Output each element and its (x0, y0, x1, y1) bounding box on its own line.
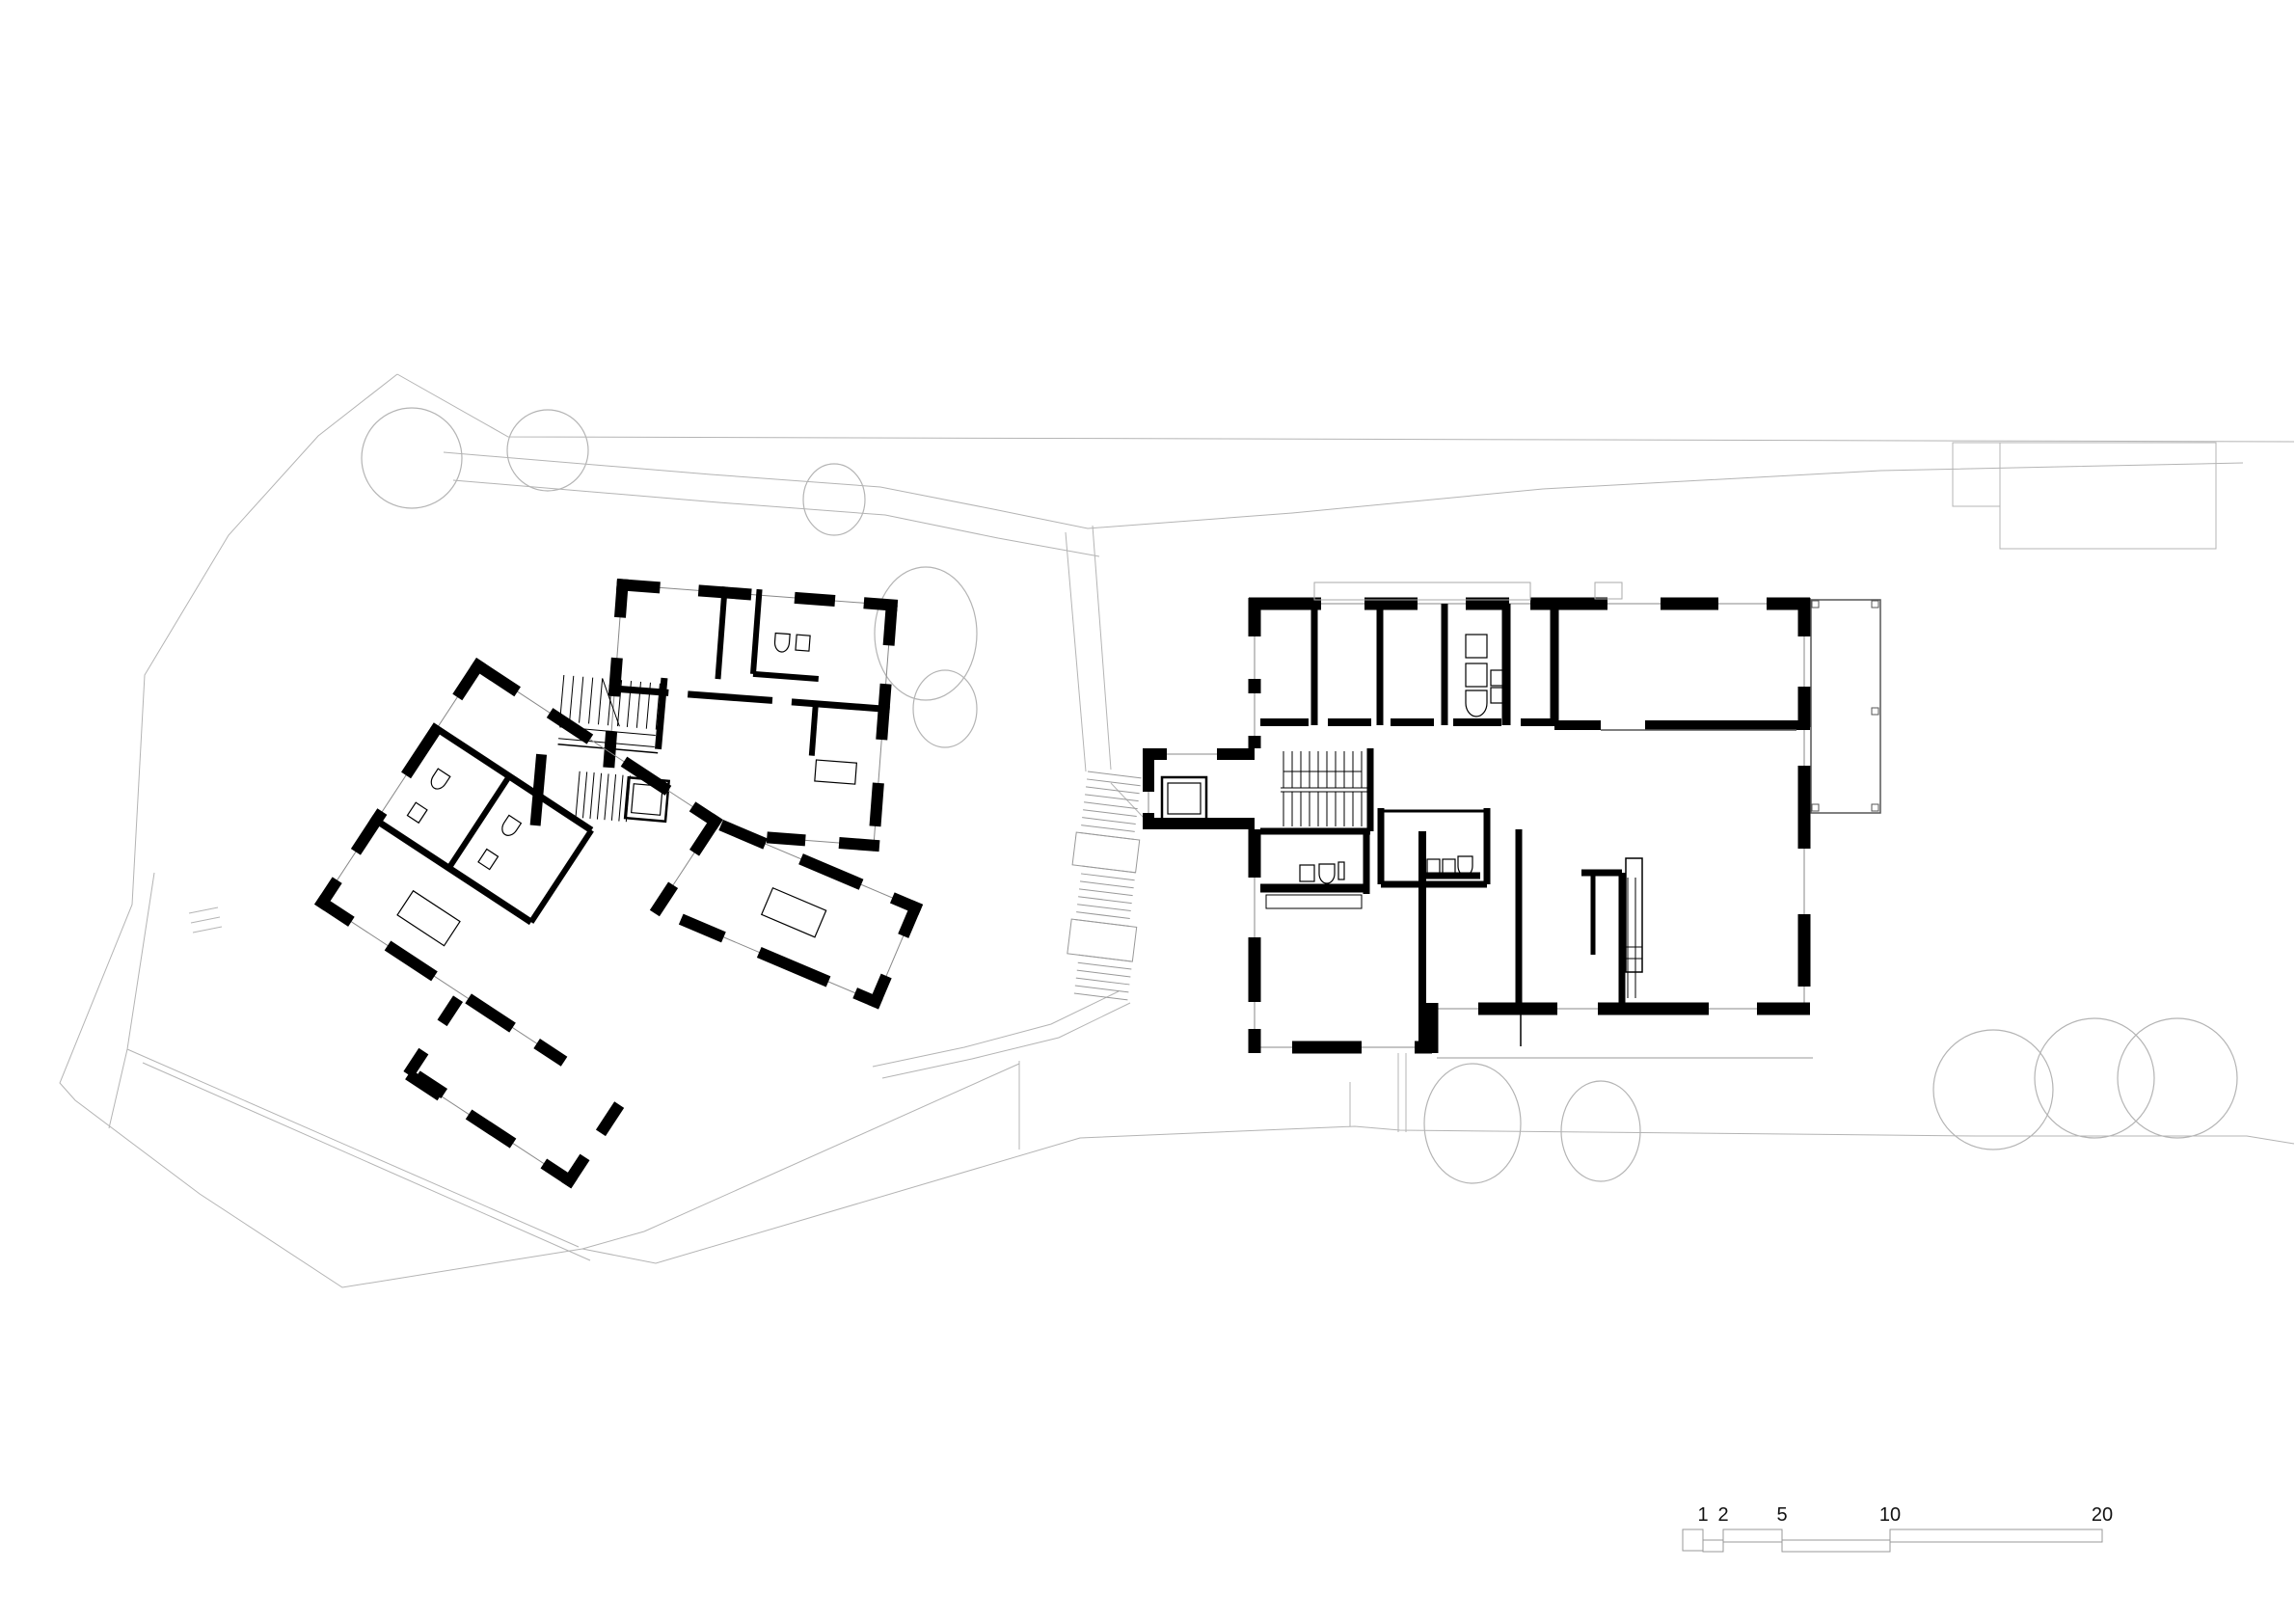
footpath-upper (444, 452, 2243, 528)
line (193, 927, 222, 933)
line (189, 907, 218, 913)
line (371, 817, 530, 922)
pline (873, 991, 1119, 1067)
scale-bar-segment (1683, 1529, 1703, 1551)
line (717, 586, 724, 679)
rect (1067, 919, 1137, 961)
trees (362, 408, 2237, 1183)
scale-bar (1683, 1529, 2102, 1552)
building-east-walls (1143, 598, 1810, 1053)
treads (1082, 866, 1136, 873)
treads (1085, 795, 1139, 801)
table (762, 888, 826, 937)
treads (1080, 881, 1134, 888)
treads (1082, 818, 1136, 825)
toilet (1319, 864, 1335, 883)
line (753, 589, 760, 674)
treads (1083, 810, 1137, 817)
treads (1076, 978, 1130, 985)
pline (109, 873, 154, 1128)
toilet (499, 815, 521, 838)
west-wall (608, 579, 623, 767)
treads (1086, 787, 1140, 794)
line (127, 1049, 579, 1247)
building-east-fixtures (1300, 635, 1503, 883)
stair-treads (619, 775, 623, 822)
east-wall (874, 605, 892, 851)
tree (1561, 1081, 1640, 1181)
line (432, 725, 591, 830)
line (317, 900, 564, 1062)
scale-bar-labels: 1251020 (1697, 1504, 2113, 1526)
stair-treads (597, 773, 601, 820)
treads (1077, 970, 1131, 977)
table (397, 891, 460, 946)
neighbor-building-small (1953, 443, 2000, 506)
tree (2118, 1018, 2237, 1138)
roof-outline (1595, 582, 1622, 599)
stair-treads (590, 772, 594, 819)
sink (1427, 859, 1440, 874)
building-west-volume-ne (598, 579, 898, 852)
treads (1078, 897, 1132, 904)
rect (1338, 862, 1344, 879)
wardrobe (1626, 858, 1642, 972)
treads (1087, 779, 1141, 786)
treads (1075, 986, 1129, 992)
treads (1088, 771, 1142, 778)
kitchen-island (815, 760, 857, 784)
scale-label: 10 (1879, 1504, 1901, 1526)
rect (1266, 895, 1362, 908)
rect (1491, 688, 1503, 703)
tree (913, 670, 977, 747)
treads (1079, 955, 1133, 961)
stair-treads (570, 676, 574, 722)
site-plan-drawing: 1251020 (0, 0, 2296, 1623)
rect (1872, 601, 1878, 608)
building-west-volume-se (679, 820, 923, 1010)
sink (796, 635, 810, 651)
scale-bar-segment (1890, 1529, 2102, 1542)
treads (1078, 962, 1132, 969)
sink (1300, 865, 1314, 881)
stair-treads (598, 678, 602, 724)
pline (397, 374, 2294, 442)
east-wall (566, 1105, 619, 1186)
toilet (774, 633, 790, 652)
sink (407, 802, 426, 823)
rect (1812, 601, 1819, 608)
treads (1076, 912, 1130, 919)
stair-treads (576, 771, 580, 818)
tree (2035, 1018, 2154, 1138)
scale-label: 5 (1776, 1504, 1787, 1526)
plan-canvas: 1251020 (0, 0, 2296, 1623)
sink (1443, 859, 1455, 874)
treads (1081, 874, 1135, 880)
line (449, 776, 510, 868)
neighbor-building-large (2000, 443, 2216, 549)
rect (1812, 804, 1819, 811)
building-west-volume-s (405, 999, 624, 1189)
rect (1491, 670, 1503, 686)
elevator-cab (1168, 783, 1201, 814)
tree (362, 408, 462, 508)
line (608, 689, 889, 710)
line (753, 674, 819, 679)
footpath-lower (453, 480, 1099, 556)
stair-treads (605, 773, 608, 820)
line (644, 1064, 1019, 1231)
line (531, 830, 592, 922)
toilet (1466, 690, 1487, 717)
treads (1079, 889, 1133, 896)
treads (1074, 993, 1128, 1000)
treads (1081, 825, 1135, 832)
treads (1077, 905, 1131, 911)
line (1111, 783, 1144, 818)
west-wall (408, 999, 458, 1075)
stair-treads (580, 677, 583, 723)
sink (478, 850, 498, 870)
stair-treads (582, 771, 586, 818)
balcony (1811, 600, 1880, 813)
line (812, 704, 816, 756)
scale-label: 1 (1697, 1504, 1708, 1526)
scale-label: 20 (2092, 1504, 2113, 1526)
scale-bar-segment (1723, 1529, 1782, 1542)
rect (1872, 804, 1878, 811)
external-stair (1057, 771, 1154, 1000)
line (1093, 526, 1111, 770)
pline (882, 1003, 1130, 1078)
tree (1933, 1030, 2053, 1150)
line (1066, 532, 1086, 771)
scale-label: 2 (1717, 1504, 1728, 1526)
tree (1424, 1064, 1521, 1183)
scale-bar-segment (1703, 1540, 1723, 1552)
building-east-interior (1162, 582, 1880, 1058)
sink (1466, 635, 1487, 658)
scale-bar-segment (1782, 1540, 1890, 1552)
tree (803, 464, 865, 535)
stair-treads (611, 774, 615, 821)
rect (1872, 708, 1878, 715)
line (191, 917, 220, 923)
sink (1466, 663, 1487, 687)
roof-outline (1314, 582, 1530, 600)
tree (507, 410, 588, 491)
line (582, 1231, 644, 1249)
line (143, 1063, 590, 1260)
stair-treads (589, 678, 593, 724)
toilet (428, 769, 450, 792)
